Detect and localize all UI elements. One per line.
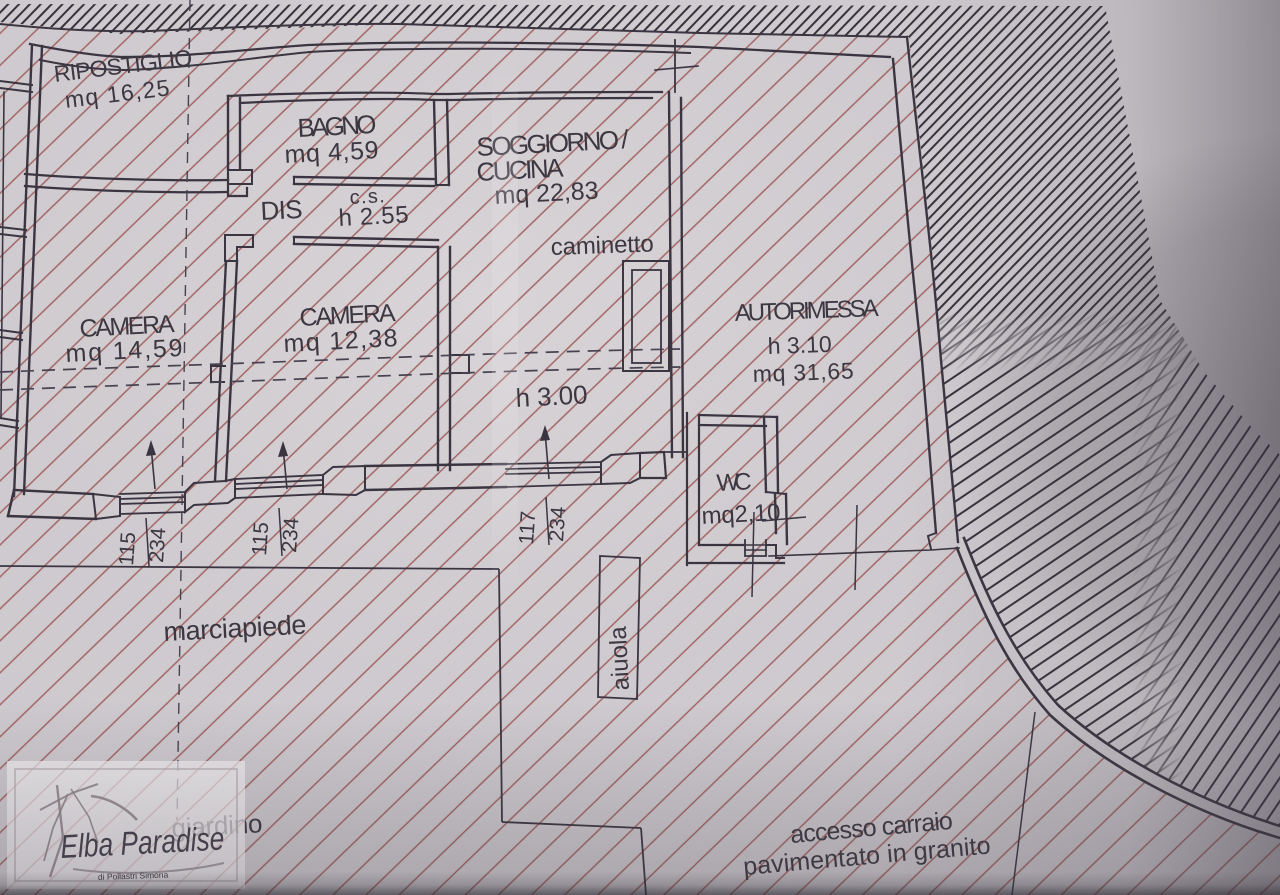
svg-text:115: 115 <box>115 531 140 566</box>
svg-text:AUTORIMESSA: AUTORIMESSA <box>734 295 879 327</box>
svg-text:mq 12,38: mq 12,38 <box>283 324 398 358</box>
svg-text:h 2.55: h 2.55 <box>338 201 409 232</box>
svg-text:mq 4,59: mq 4,59 <box>284 136 379 169</box>
svg-text:WC: WC <box>716 468 752 497</box>
svg-text:234: 234 <box>278 516 303 553</box>
svg-text:DIS: DIS <box>260 194 304 226</box>
svg-text:aiuola: aiuola <box>605 625 635 691</box>
svg-text:h 3.00: h 3.00 <box>515 379 588 413</box>
svg-text:234: 234 <box>145 526 170 563</box>
svg-text:117: 117 <box>515 510 540 545</box>
svg-text:caminetto: caminetto <box>550 230 654 261</box>
svg-text:mq2,10: mq2,10 <box>701 499 781 530</box>
svg-text:mq 31,65: mq 31,65 <box>752 357 854 387</box>
svg-text:h 3.10: h 3.10 <box>767 331 832 359</box>
svg-text:115: 115 <box>248 521 273 556</box>
svg-text:234: 234 <box>545 505 570 542</box>
